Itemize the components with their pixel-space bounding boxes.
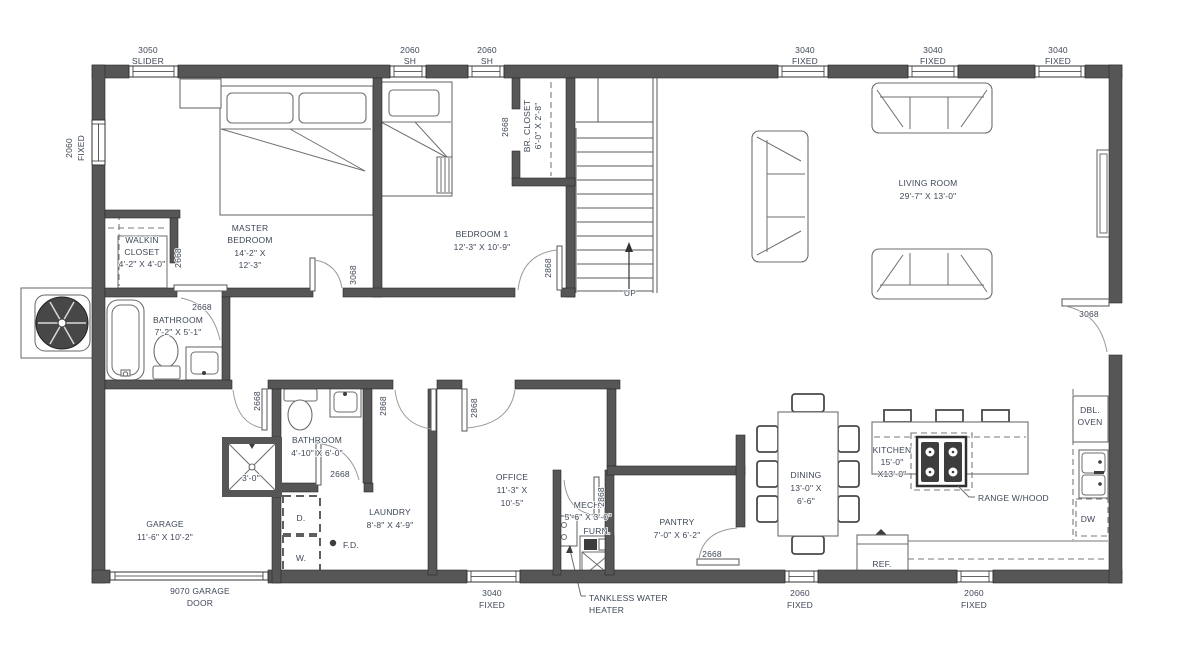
washer-label: W. <box>296 553 306 563</box>
window-label-type: FIXED <box>920 56 946 66</box>
window-fixed-3 <box>1035 66 1085 77</box>
window-label-size: 3040 <box>923 45 943 55</box>
room-label-bathroom2: BATHROOM <box>292 435 342 445</box>
master-bed <box>220 86 373 215</box>
window-label-size: 3040 <box>795 45 815 55</box>
garage-door-label: DOOR <box>187 598 213 608</box>
furnace-label: FURN. <box>584 526 611 536</box>
kitchen-sink <box>1079 450 1108 498</box>
dishwasher-label: DW <box>1081 514 1096 524</box>
room-label-br-closet: BR. CLOSET <box>522 100 532 153</box>
toilet-2 <box>284 389 317 430</box>
sink-vanity <box>186 347 224 380</box>
room-label-kitchen: KITCHEN <box>873 445 912 455</box>
floor-plan-page: 3050 SLIDER 2060 SH 2060 SH 3040 FIXED 3… <box>0 0 1198 657</box>
window-sh-1 <box>390 66 426 77</box>
stairs-up-label: UP <box>624 288 636 298</box>
fridge-label: REF. <box>872 559 891 569</box>
dbl-oven-label: OVEN <box>1078 417 1103 427</box>
window-bottom-fixed-1 <box>467 571 520 582</box>
room-label-office: OFFICE <box>496 472 528 482</box>
room-label-dining: DINING <box>791 470 822 480</box>
room-label-walkin: CLOSET <box>124 247 159 257</box>
ac-unit <box>21 288 93 358</box>
window-label-type: FIXED <box>479 600 505 610</box>
range-label: RANGE W/HOOD <box>978 493 1049 503</box>
room-dim-pantry: 7'-0" X 6'-2" <box>654 530 701 540</box>
window-label-type: FIXED <box>792 56 818 66</box>
door-label-walkin: 2668 <box>173 248 183 268</box>
room-label-bedroom1: BEDROOM 1 <box>456 229 509 239</box>
stairs <box>572 78 657 293</box>
window-label-size: 2060 <box>964 588 984 598</box>
room-dim-living: 29'-7" X 13'-0" <box>900 191 957 201</box>
room-label-garage: GARAGE <box>146 519 184 529</box>
room-dim-master: 14'-2" X <box>234 248 265 258</box>
floor-drain <box>330 540 336 546</box>
window-label-size: 2060 <box>400 45 420 55</box>
room-dim-garage: 11'-6" X 10'-2" <box>137 532 193 542</box>
floor-plan: 3050 SLIDER 2060 SH 2060 SH 3040 FIXED 3… <box>0 0 1198 657</box>
dryer-label: D. <box>297 513 306 523</box>
sofa-left <box>752 131 808 262</box>
window-label-size: 2060 <box>790 588 810 598</box>
window-label-type: FIXED <box>961 600 987 610</box>
room-label-walkin: WALKIN <box>125 235 158 245</box>
toilet <box>153 335 180 379</box>
door-label-bathroom1: 2668 <box>192 302 212 312</box>
window-label-size: 2060 <box>477 45 497 55</box>
window-label-type: SH <box>481 56 493 66</box>
window-label-type: FIXED <box>787 600 813 610</box>
window-fixed-2 <box>908 66 958 77</box>
dresser <box>180 79 221 108</box>
room-label-bathroom1: BATHROOM <box>153 315 203 325</box>
door-label-bathroom2: 2668 <box>330 469 350 479</box>
room-dim-kitchen: 15'-0" <box>881 457 904 467</box>
room-dim-dining: 6'-6" <box>797 496 815 506</box>
door-label-pantry: 2668 <box>702 549 722 559</box>
room-label-laundry: LAUNDRY <box>369 507 411 517</box>
window-label-size: 3040 <box>482 588 502 598</box>
room-dim-master: 12'-3" <box>239 260 262 270</box>
door-label-garage-hall: 2668 <box>252 391 262 411</box>
window-left-fixed <box>92 120 105 165</box>
bathtub <box>107 300 144 380</box>
window-label-size: 2060 <box>64 138 74 158</box>
window-label-type: FIXED <box>76 135 86 161</box>
door-label-br-closet: 2668 <box>500 117 510 137</box>
room-dim-office: 10'-5" <box>501 498 524 508</box>
room-dim-office: 11'-3" X <box>497 485 528 495</box>
window-bottom-fixed-2 <box>785 571 818 582</box>
shower-dim-label: 3'-0" <box>242 473 260 483</box>
tankless-label: HEATER <box>589 605 624 615</box>
room-label-master: BEDROOM <box>227 235 272 245</box>
room-dim-dining: 13'-0" X <box>790 483 821 493</box>
room-dim-walkin: 4'-2" X 4'-0" <box>119 259 166 269</box>
floor-drain-label: F.D. <box>343 540 359 550</box>
sofa-bottom <box>872 249 992 299</box>
room-dim-bathroom1: 7'-2" X 5'-1" <box>155 327 202 337</box>
door-label-hall: 2868 <box>378 396 388 416</box>
room-label-pantry: PANTRY <box>660 517 695 527</box>
garage-door-label: 9070 GARAGE <box>170 586 230 596</box>
room-dim-bedroom1: 12'-3" X 10'-9" <box>454 242 511 252</box>
window-label-type: SH <box>404 56 416 66</box>
room-dim-laundry: 8'-8" X 4'-9" <box>367 520 414 530</box>
window-label-size: 3050 <box>138 45 158 55</box>
room-dim-bathroom2: 4'-10" X 6'-0" <box>291 448 343 458</box>
door-label-living: 3068 <box>1079 309 1099 319</box>
door-label-office: 2868 <box>469 398 479 418</box>
window-sh-2 <box>468 66 504 77</box>
room-label-master: MASTER <box>232 223 269 233</box>
fireplace <box>1097 150 1110 237</box>
garage-door <box>110 572 268 580</box>
window-bottom-fixed-3 <box>957 571 993 582</box>
door-label-bedroom1: 2868 <box>543 258 553 278</box>
window-label-type: SLIDER <box>132 56 164 66</box>
single-bed <box>380 82 452 196</box>
tankless-label: TANKLESS WATER <box>589 593 668 603</box>
shower <box>226 441 279 494</box>
dbl-oven-label: DBL. <box>1080 405 1100 415</box>
window-slider <box>129 66 178 77</box>
room-dim-br-closet: 6'-0" X 2'-8" <box>533 103 543 150</box>
room-label-living: LIVING ROOM <box>899 178 958 188</box>
sink-vanity-2 <box>330 388 361 417</box>
window-label-size: 3040 <box>1048 45 1068 55</box>
window-fixed-1 <box>778 66 828 77</box>
window-label-type: FIXED <box>1045 56 1071 66</box>
door-label-mech: 2868 <box>596 487 606 507</box>
sofa-top <box>872 83 992 133</box>
room-dim-kitchen: X13'-0" <box>878 469 907 479</box>
up-arrow-icon <box>625 242 633 252</box>
door-label-master: 3068 <box>348 265 358 285</box>
room-dim-mech: 5'-6" X 3'-0" <box>565 512 612 522</box>
range <box>911 433 975 497</box>
